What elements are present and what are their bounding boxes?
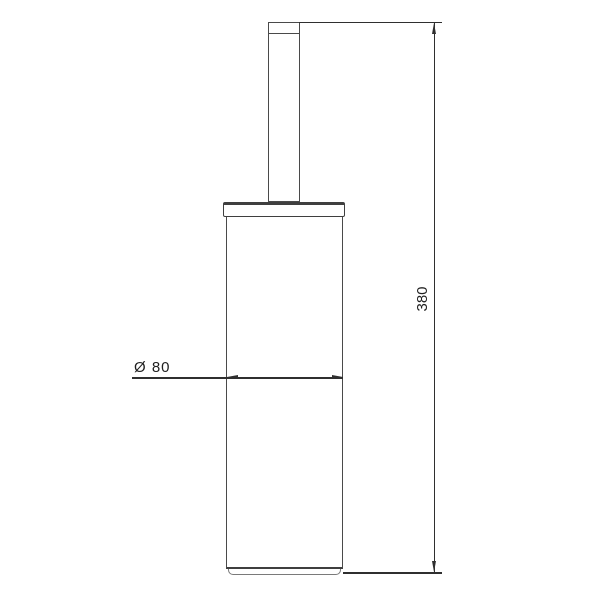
- diameter-arrowhead-left-icon: [227, 375, 238, 379]
- diameter-arrowhead-right-icon: [332, 375, 343, 379]
- height-dimension-label: 380: [414, 278, 430, 320]
- handle-joint-line: [268, 33, 300, 34]
- diameter-dimension-line: [132, 377, 343, 378]
- canister-base-rim: [228, 569, 341, 575]
- extension-line-bottom: [343, 572, 442, 573]
- height-arrowhead-down-icon: [432, 561, 436, 572]
- lid-outline: [223, 202, 346, 217]
- technical-drawing-canvas: Ø 80 380: [0, 0, 600, 600]
- height-dimension-line: [434, 22, 435, 572]
- extension-line-top: [299, 22, 442, 23]
- canister-body-outline: [226, 217, 343, 569]
- height-arrowhead-up-icon: [432, 23, 436, 34]
- diameter-dimension-label: Ø 80: [134, 359, 171, 376]
- brush-handle-outline: [268, 22, 300, 202]
